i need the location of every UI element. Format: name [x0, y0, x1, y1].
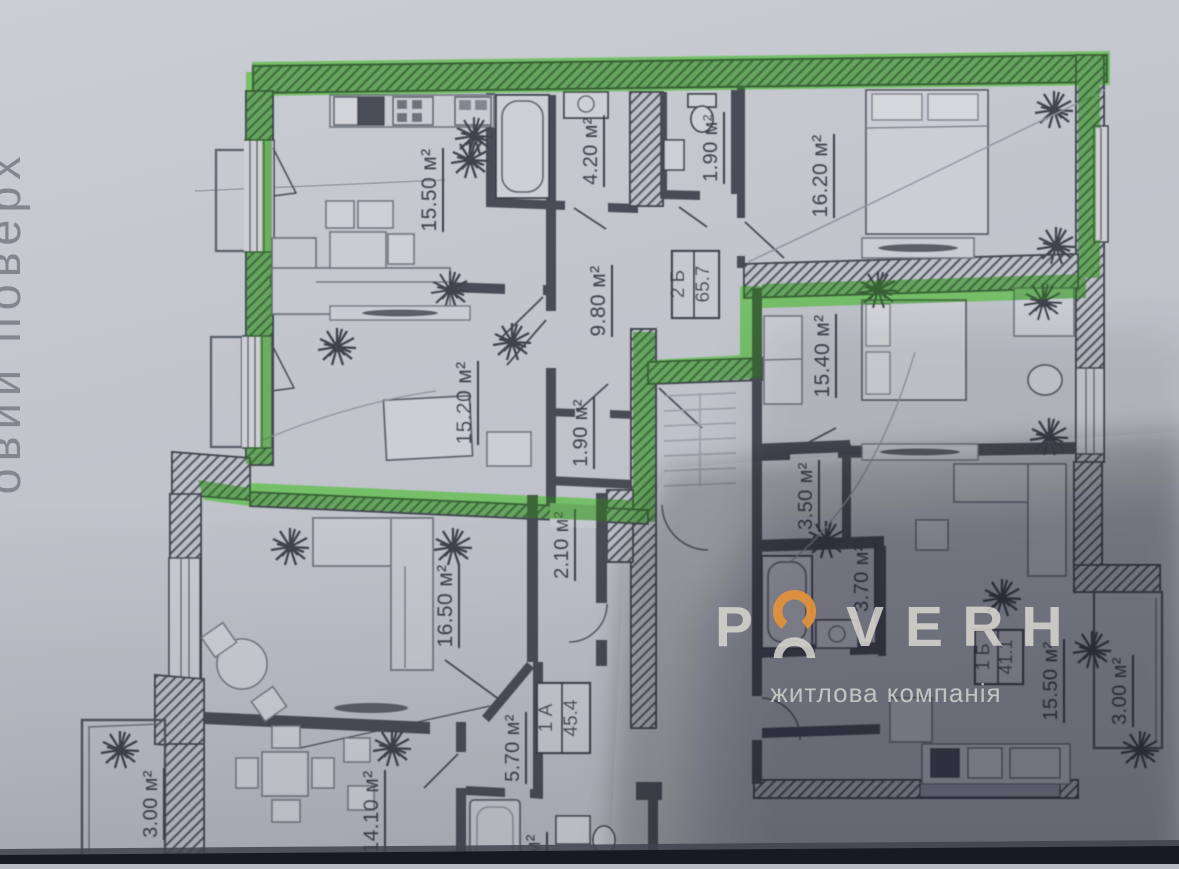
svg-text:овий поверх: овий поверх [0, 150, 30, 495]
svg-text:16.20 м²: 16.20 м² [809, 134, 832, 217]
svg-text:1.90 м²: 1.90 м² [570, 399, 592, 467]
svg-text:R: R [962, 595, 1003, 659]
svg-text:15.50 м²: 15.50 м² [418, 148, 441, 231]
svg-text:H: H [1021, 595, 1062, 659]
svg-text:житлова компанія: житлова компанія [770, 678, 1001, 708]
svg-text:4.20 м²: 4.20 м² [580, 117, 602, 185]
svg-text:2 Б: 2 Б [668, 270, 689, 298]
svg-text:V: V [846, 595, 884, 659]
svg-text:15.20 м²: 15.20 м² [453, 361, 476, 444]
svg-text:1.90 м²: 1.90 м² [700, 114, 722, 182]
svg-text:E: E [905, 595, 943, 659]
svg-text:9.80 м²: 9.80 м² [587, 266, 610, 337]
svg-text:P: P [715, 595, 753, 659]
svg-text:65.7: 65.7 [693, 266, 714, 303]
